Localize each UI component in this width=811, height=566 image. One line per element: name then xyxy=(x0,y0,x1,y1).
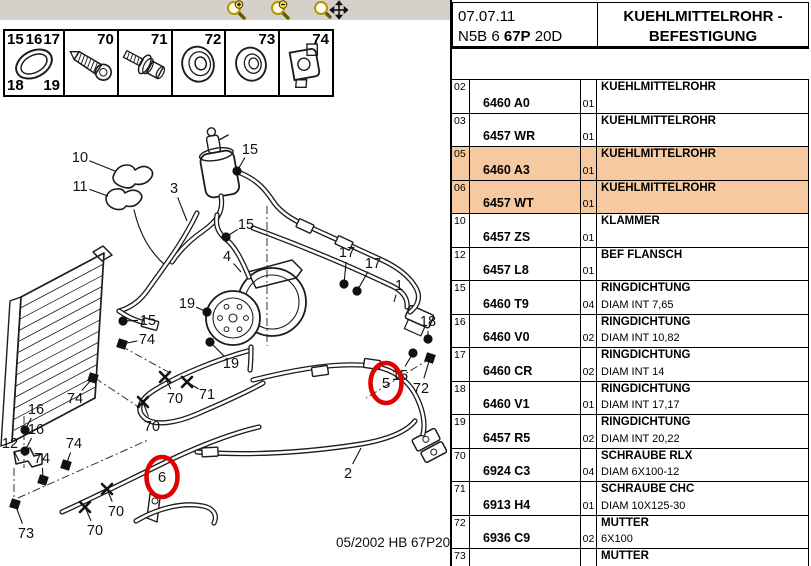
row-part-number: 6460 CR xyxy=(470,348,581,381)
header-code: N5B 6 67P 20D xyxy=(458,27,597,47)
diagram-label-15: 15 xyxy=(242,142,258,158)
bracket-10 xyxy=(113,165,153,188)
diagram-label-1: 1 xyxy=(395,278,403,294)
diagram-label-6: 6 xyxy=(158,469,166,486)
legend-number: 74 xyxy=(312,33,329,47)
zoom-in-icon[interactable] xyxy=(224,0,250,20)
row-ref: 15 xyxy=(452,281,470,314)
row-description: BEF FLANSCH xyxy=(597,248,808,281)
legend-number: 73 xyxy=(259,33,276,47)
row-part-number: 6460 A0 xyxy=(470,80,581,113)
row-description: RINGDICHTUNGDIAM INT 17,17 xyxy=(597,382,808,415)
row-description: KLAMMER xyxy=(597,214,808,247)
part-row[interactable]: 126457 L801BEF FLANSCH xyxy=(452,248,808,282)
diagram-label-2: 2 xyxy=(344,466,352,482)
legend-number: 17 xyxy=(43,33,60,47)
row-part-number: 6460 V1 xyxy=(470,382,581,415)
part-row[interactable]: 186460 V101RINGDICHTUNGDIAM INT 17,17 xyxy=(452,382,808,416)
legend-number: 19 xyxy=(43,79,60,93)
page-title: KUEHLMITTELROHR - BEFESTIGUNG xyxy=(598,3,808,46)
legend-number: 16 xyxy=(26,33,43,47)
row-ref: 19 xyxy=(452,415,470,448)
row-ref: 18 xyxy=(452,382,470,415)
zoom-toolbar xyxy=(0,0,451,20)
row-ref: 70 xyxy=(452,449,470,482)
parts-table: 026460 A001KUEHLMITTELROHR036457 WR01KUE… xyxy=(452,79,809,566)
row-qty: 02 xyxy=(581,415,597,448)
diagram-label-17: 17 xyxy=(339,245,355,261)
row-part-number: 6460 T9 xyxy=(470,281,581,314)
row-ref: 72 xyxy=(452,516,470,549)
row-ref: 73 xyxy=(452,549,470,566)
header-date: 07.07.11 xyxy=(458,7,597,27)
diagram-label-70: 70 xyxy=(108,504,124,520)
legend-cell-clip-nut: 74 xyxy=(280,31,332,95)
row-part-number: 6457 ZS xyxy=(470,214,581,247)
diagram-pane: 1011315154171711815721919157416161274747… xyxy=(0,0,451,566)
zoom-pan-icon[interactable] xyxy=(312,0,348,20)
bracket-11 xyxy=(106,189,142,210)
diagram-label-71: 71 xyxy=(199,387,215,403)
row-description: RINGDICHTUNGDIAM INT 20,22 xyxy=(597,415,808,448)
legend-number: 18 xyxy=(7,79,24,93)
legend-cell-washer: 73 xyxy=(226,31,280,95)
row-part-number: 6457 L8 xyxy=(470,248,581,281)
row-part-number: 6924 C3 xyxy=(470,449,581,482)
row-qty: 04 xyxy=(581,281,597,314)
row-qty: 01 xyxy=(581,147,597,180)
diagram-footer: 05/2002 HB 67P20D xyxy=(336,535,451,550)
diagram-label-12: 12 xyxy=(2,436,18,452)
row-description: RINGDICHTUNGDIAM INT 7,65 xyxy=(597,281,808,314)
diagram-label-74: 74 xyxy=(66,436,82,452)
diagram-label-5: 5 xyxy=(382,375,390,392)
legend-cell-grommet: 72 xyxy=(173,31,227,95)
diagram-label-73: 73 xyxy=(18,526,34,542)
diagram-label-15: 15 xyxy=(140,313,156,329)
diagram-label-70: 70 xyxy=(167,391,183,407)
row-part-number: 6913 H4 xyxy=(470,482,581,515)
part-row[interactable]: 036457 WR01KUEHLMITTELROHR xyxy=(452,114,808,148)
row-ref: 03 xyxy=(452,114,470,147)
part-row[interactable]: 716913 H401SCHRAUBE CHCDIAM 10X125-30 xyxy=(452,482,808,516)
row-part-number: 6460 V0 xyxy=(470,315,581,348)
part-row[interactable]: 156460 T904RINGDICHTUNGDIAM INT 7,65 xyxy=(452,281,808,315)
row-part-number xyxy=(470,549,581,566)
compressor xyxy=(206,260,306,345)
part-row[interactable]: 166460 V002RINGDICHTUNGDIAM INT 10,82 xyxy=(452,315,808,349)
row-description: KUEHLMITTELROHR xyxy=(597,114,808,147)
row-part-number: 6460 A3 xyxy=(470,147,581,180)
diagram-label-18: 18 xyxy=(420,314,436,330)
diagram-label-17: 17 xyxy=(365,256,381,272)
part-row[interactable]: 026460 A001KUEHLMITTELROHR xyxy=(452,80,808,114)
row-qty: 01 xyxy=(581,181,597,214)
row-ref: 17 xyxy=(452,348,470,381)
row-qty: 01 xyxy=(581,482,597,515)
table-header: 07.07.11 N5B 6 67P 20D KUEHLMITTELROHR -… xyxy=(452,2,809,49)
receiver-drier xyxy=(195,125,240,199)
row-ref: 10 xyxy=(452,214,470,247)
diagram-label-10: 10 xyxy=(72,150,88,166)
row-qty: 01 xyxy=(581,114,597,147)
parts-catalog-window: 1011315154171711815721919157416161274747… xyxy=(0,0,811,566)
hardware-legend: 15161718197071727374 xyxy=(3,29,334,97)
part-row[interactable]: 056460 A301KUEHLMITTELROHR xyxy=(452,147,808,181)
legend-number: 15 xyxy=(7,33,24,47)
diagram-label-16: 16 xyxy=(28,402,44,418)
row-description: MUTTER xyxy=(597,549,808,566)
row-ref: 71 xyxy=(452,482,470,515)
diagram-label-19: 19 xyxy=(179,296,195,312)
legend-cell-o-ring: 1516171819 xyxy=(5,31,65,95)
row-description: RINGDICHTUNGDIAM INT 10,82 xyxy=(597,315,808,348)
legend-cell-bolt-washer: 71 xyxy=(119,31,173,95)
legend-number: 70 xyxy=(97,33,114,47)
row-qty: 02 xyxy=(581,315,597,348)
diagram-label-19: 19 xyxy=(223,356,239,372)
row-qty: 01 xyxy=(581,248,597,281)
parts-table-pane: 07.07.11 N5B 6 67P 20D KUEHLMITTELROHR -… xyxy=(452,0,811,566)
row-description: RINGDICHTUNGDIAM INT 14 xyxy=(597,348,808,381)
diagram-label-70: 70 xyxy=(144,419,160,435)
condenser xyxy=(12,253,104,442)
part-row[interactable]: 706924 C304SCHRAUBE RLXDIAM 6X100-12 xyxy=(452,449,808,483)
row-part-number: 6457 R5 xyxy=(470,415,581,448)
part-row[interactable]: 73MUTTER xyxy=(452,549,808,566)
part-row[interactable]: 726936 C902MUTTER6X100 xyxy=(452,516,808,550)
row-description: MUTTER6X100 xyxy=(597,516,808,549)
diagram-label-70: 70 xyxy=(87,523,103,539)
row-description: SCHRAUBE RLXDIAM 6X100-12 xyxy=(597,449,808,482)
row-qty: 01 xyxy=(581,80,597,113)
diagram-label-74: 74 xyxy=(34,451,50,467)
part-row[interactable]: 176460 CR02RINGDICHTUNGDIAM INT 14 xyxy=(452,348,808,382)
row-ref: 16 xyxy=(452,315,470,348)
diagram-label-72: 72 xyxy=(413,381,429,397)
row-part-number: 6457 WR xyxy=(470,114,581,147)
row-description: KUEHLMITTELROHR xyxy=(597,181,808,214)
diagram-label-3: 3 xyxy=(170,181,178,197)
row-qty xyxy=(581,549,597,566)
diagram-label-16: 16 xyxy=(28,422,44,438)
row-ref: 02 xyxy=(452,80,470,113)
row-ref: 05 xyxy=(452,147,470,180)
diagram-label-15: 15 xyxy=(238,217,254,233)
row-part-number: 6936 C9 xyxy=(470,516,581,549)
header-reference-block: 07.07.11 N5B 6 67P 20D xyxy=(453,3,598,46)
diagram-label-4: 4 xyxy=(223,249,231,265)
legend-number: 72 xyxy=(205,33,222,47)
diagram-label-74: 74 xyxy=(139,332,155,348)
row-description: SCHRAUBE CHCDIAM 10X125-30 xyxy=(597,482,808,515)
diagram-label-11: 11 xyxy=(72,179,87,195)
row-ref: 12 xyxy=(452,248,470,281)
legend-number: 71 xyxy=(151,33,168,47)
row-ref: 06 xyxy=(452,181,470,214)
row-qty: 02 xyxy=(581,516,597,549)
row-qty: 02 xyxy=(581,348,597,381)
row-description: KUEHLMITTELROHR xyxy=(597,147,808,180)
legend-cell-screw: 70 xyxy=(65,31,119,95)
part-row[interactable]: 066457 WT01KUEHLMITTELROHR xyxy=(452,181,808,215)
diagram-label-74: 74 xyxy=(67,391,83,407)
row-qty: 04 xyxy=(581,449,597,482)
zoom-out-icon[interactable] xyxy=(268,0,294,20)
row-part-number: 6457 WT xyxy=(470,181,581,214)
row-qty: 01 xyxy=(581,382,597,415)
part-row[interactable]: 106457 ZS01KLAMMER xyxy=(452,214,808,248)
part-row[interactable]: 196457 R502RINGDICHTUNGDIAM INT 20,22 xyxy=(452,415,808,449)
row-description: KUEHLMITTELROHR xyxy=(597,80,808,113)
row-qty: 01 xyxy=(581,214,597,247)
